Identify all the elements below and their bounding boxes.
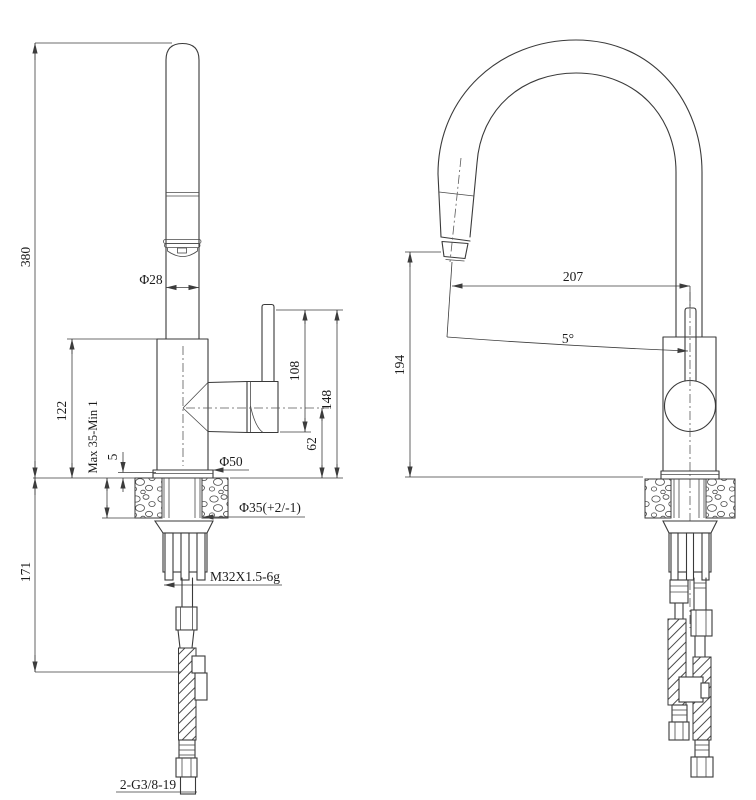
hose-end-nut [691, 757, 713, 777]
spout-tube [166, 44, 199, 340]
faucet-dimension-drawing: 380 171 122 Max 35-Min 1 5 Φ28 Φ50 Φ35(+… [0, 0, 756, 800]
dim-text-outlet-height: 194 [392, 355, 407, 376]
hose-branch-connector [679, 677, 703, 702]
base-flange [153, 470, 213, 478]
dim-text-lever-top-height: 148 [319, 390, 334, 411]
dim-text-under-counter: 171 [18, 562, 33, 582]
dim-text-reach: 207 [563, 269, 584, 284]
side-view: 207 5° 194 [392, 40, 735, 777]
supply-hose [176, 578, 207, 794]
hose-end-tube [181, 777, 196, 794]
gooseneck-spout [438, 40, 702, 337]
dim-text-overall-height: 380 [18, 247, 33, 268]
front-view: 380 171 122 Max 35-Min 1 5 Φ28 Φ50 Φ35(+… [18, 43, 343, 794]
hose-branch-connector [192, 656, 205, 673]
drawing-canvas: 380 171 122 Max 35-Min 1 5 Φ28 Φ50 Φ35(+… [0, 0, 756, 800]
dim-text-base-diameter: Φ50 [219, 454, 243, 469]
mixer-body [157, 339, 208, 470]
dim-text-base-lip: 5 [105, 453, 120, 460]
dim-text-body-height: 122 [54, 401, 69, 421]
dim-text-shank-thread: M32X1.5-6g [210, 569, 280, 584]
dim-text-outlet-center-height: 62 [304, 437, 319, 451]
side-mounting-nut [663, 521, 717, 580]
countertop-section [135, 478, 228, 518]
spray-head-collar [164, 240, 202, 257]
dim-text-hole-diameter: Φ35(+2/-1) [239, 500, 301, 515]
dim-text-hose-thread: 2-G3/8-19 [120, 777, 176, 792]
dim-text-spout-diameter: Φ28 [139, 272, 163, 287]
dim-text-handle-lever-height: 108 [287, 361, 302, 382]
dim-text-head-angle: 5° [562, 331, 574, 346]
mounting-nut [155, 521, 213, 580]
dim-text-deck-thickness: Max 35-Min 1 [86, 401, 100, 474]
side-dimensions: 207 5° 194 [392, 252, 690, 477]
hose-end-nut [176, 758, 197, 777]
hose-end-nut [669, 722, 689, 740]
spray-head [438, 158, 477, 262]
